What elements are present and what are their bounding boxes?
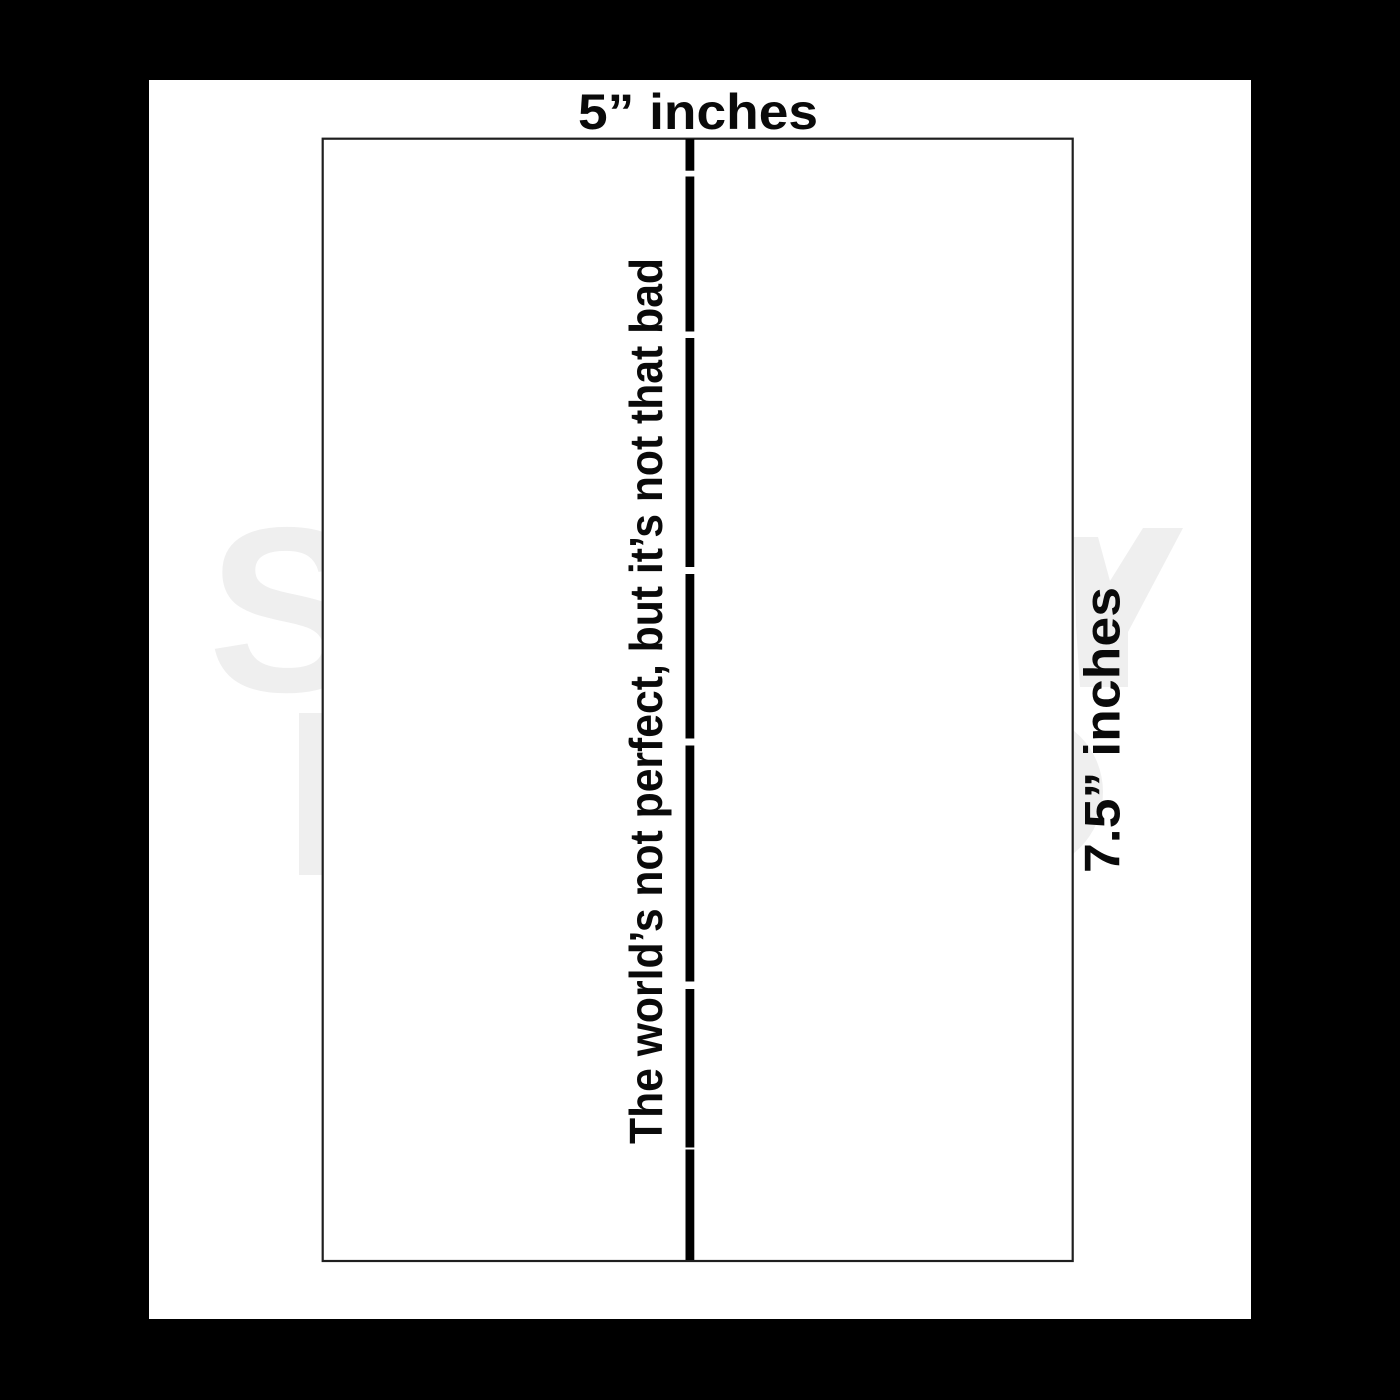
svg-text:5” inches: 5” inches	[578, 84, 818, 140]
svg-text:The world’s not perfect, but i: The world’s not perfect, but it’s not th…	[620, 258, 672, 1144]
svg-text:7.5” inches: 7.5” inches	[1075, 587, 1131, 873]
